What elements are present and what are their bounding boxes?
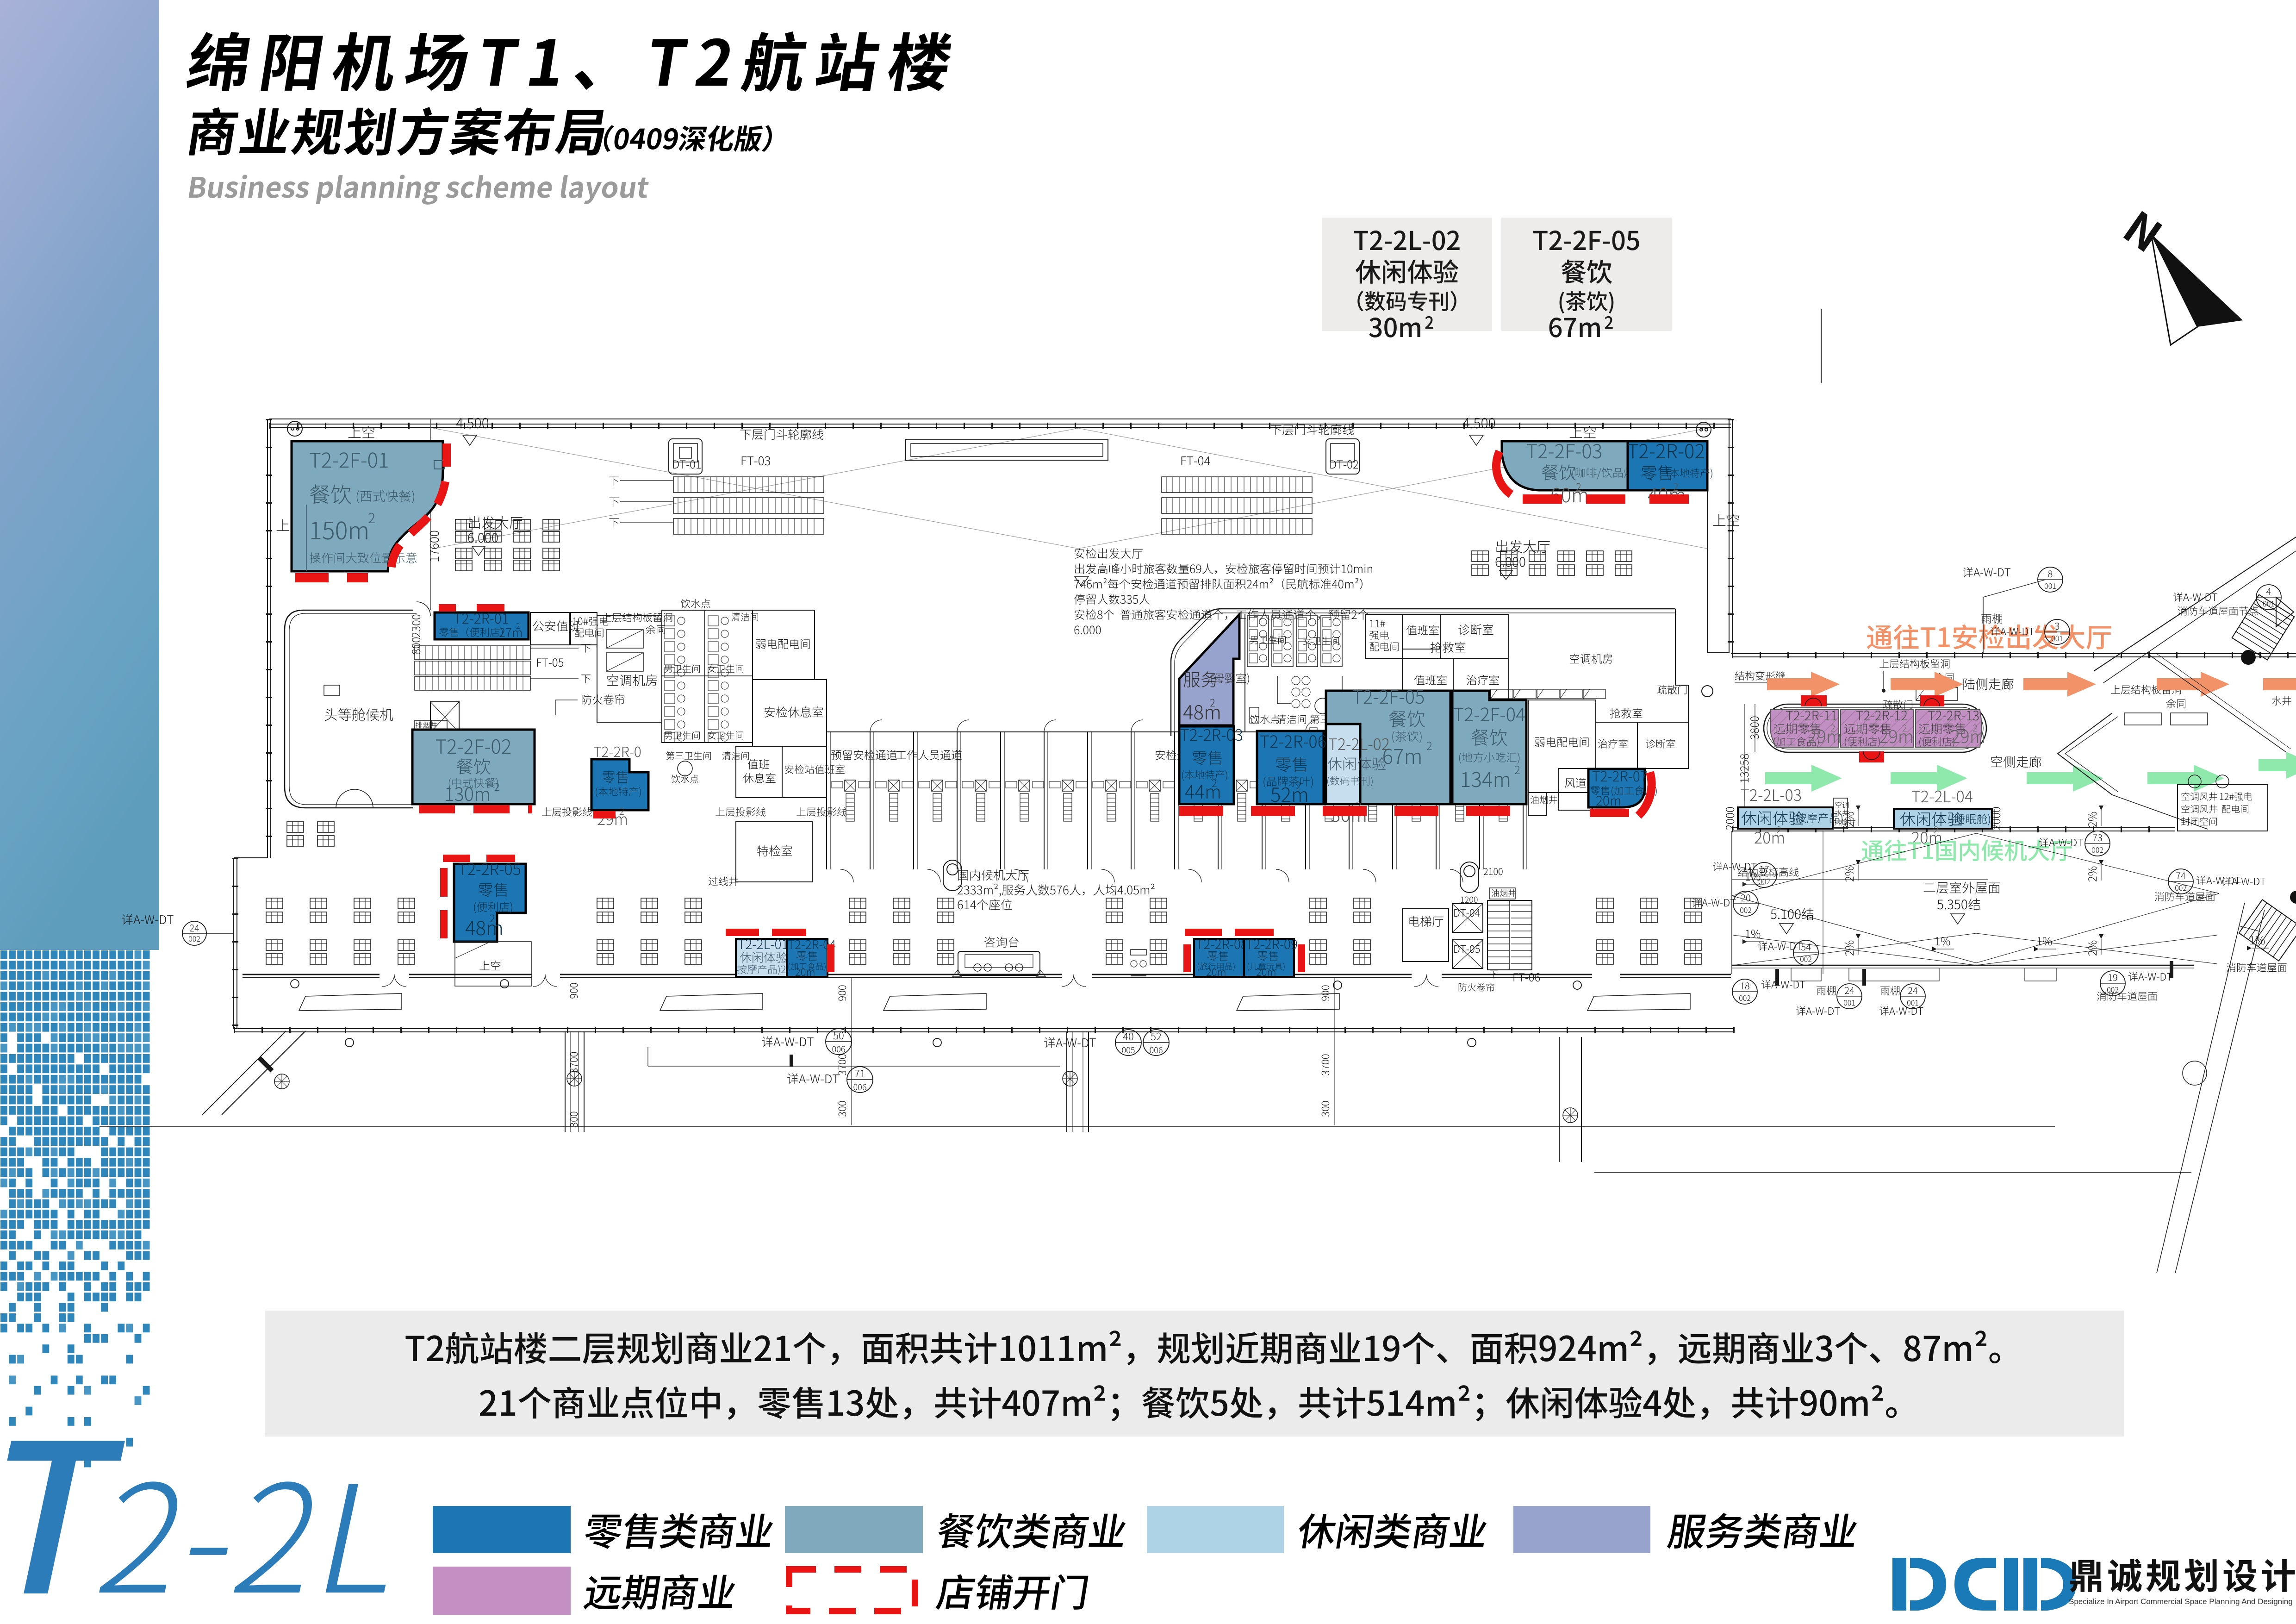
svg-text:Specialize In Airport Commerci: Specialize In Airport Commercial Space P… [2069,1597,2293,1606]
